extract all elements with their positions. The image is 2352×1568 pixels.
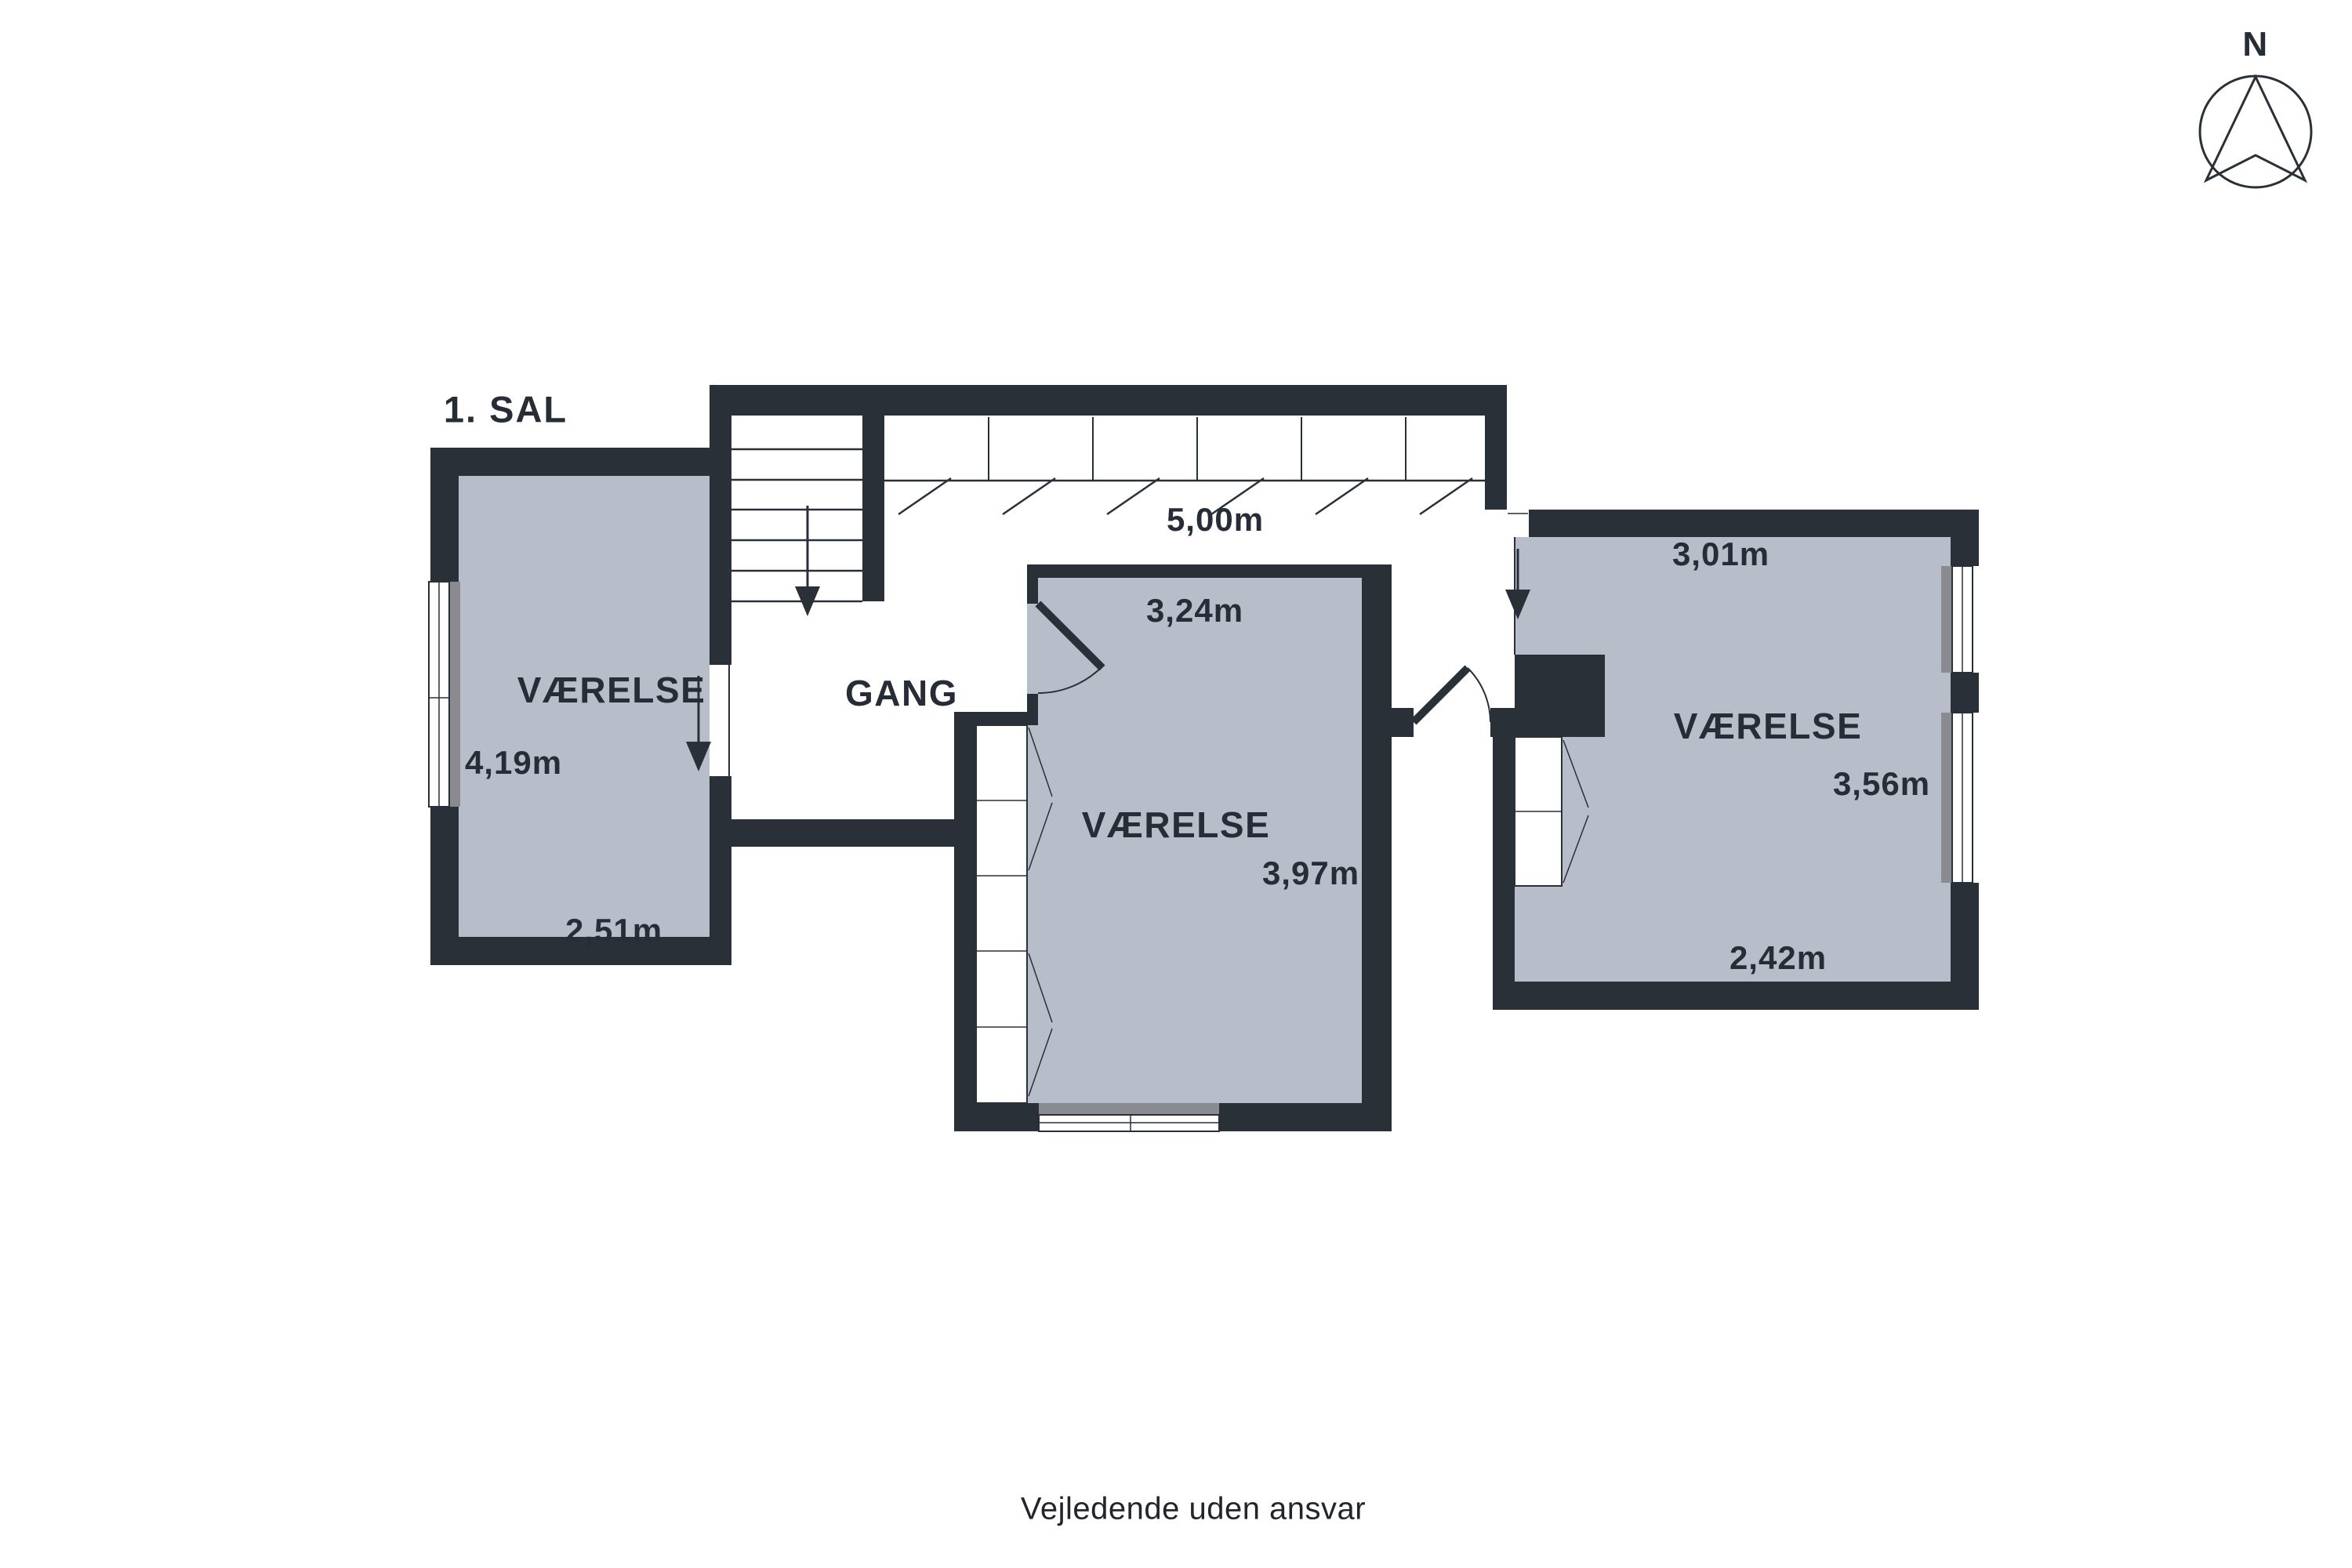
window-right-room-upper [1952, 566, 1973, 673]
room-left-depth: 4,19m [465, 744, 562, 782]
hallway-corridor-length: 5,00m [1167, 501, 1264, 539]
window-right-room-lower [1952, 713, 1973, 883]
room-middle-label: VÆRELSE [1082, 804, 1271, 846]
room-right-label: VÆRELSE [1674, 705, 1863, 747]
room-right-width-top: 3,01m [1672, 535, 1769, 573]
floorplan-linework [0, 0, 2352, 1568]
window-left-room [429, 582, 449, 807]
room-right-depth: 3,56m [1833, 765, 1930, 803]
stair-down-arrow-icon [795, 506, 820, 616]
compass-icon [2200, 76, 2311, 187]
floorplan-first-floor: 1. SAL N VÆRELSE 4,19m 2,51m GANG 5,00m … [0, 0, 2352, 1568]
door-middle-room [1038, 604, 1102, 693]
floor-title: 1. SAL [444, 388, 568, 431]
closet-right-room [1515, 737, 1588, 886]
door-right-room [1505, 514, 1530, 655]
disclaimer-text: Vejledende uden ansvar [1021, 1492, 1366, 1527]
door-landing [1414, 668, 1490, 722]
staircase [731, 449, 862, 601]
window-middle-room [1039, 1115, 1219, 1131]
closet-middle-room [976, 725, 1052, 1103]
hallway-label: GANG [845, 672, 958, 714]
compass-north-label: N [2242, 25, 2268, 64]
room-middle-width-top: 3,24m [1146, 592, 1243, 630]
room-left-width: 2,51m [565, 912, 662, 949]
room-middle-depth: 3,97m [1262, 855, 1359, 892]
room-right-width-bottom: 2,42m [1730, 939, 1827, 977]
hallway-closet-band [884, 417, 1507, 514]
room-left-label: VÆRELSE [517, 669, 706, 711]
